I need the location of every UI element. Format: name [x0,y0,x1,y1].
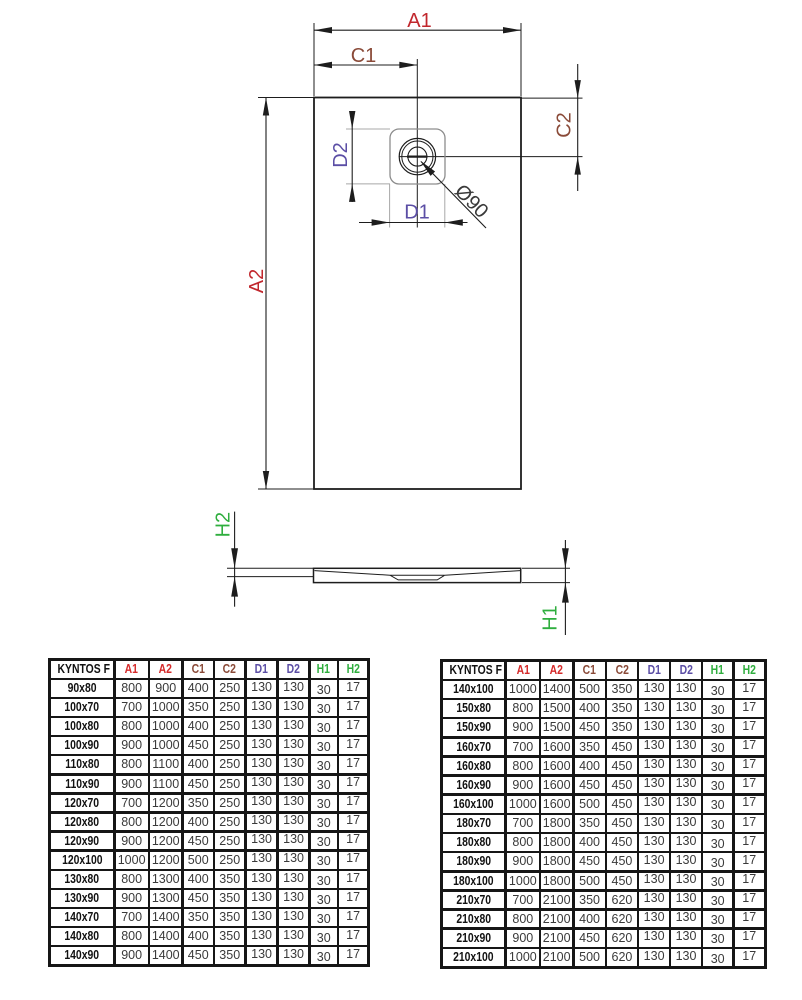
svg-text:C1: C1 [351,45,377,67]
svg-text:C2: C2 [554,112,576,138]
svg-text:D2: D2 [330,142,352,168]
svg-text:Ø90: Ø90 [450,180,492,222]
svg-text:H1: H1 [539,605,561,631]
svg-text:D1: D1 [404,202,430,224]
svg-text:A1: A1 [407,10,431,32]
svg-text:H2: H2 [212,512,234,538]
svg-text:A2: A2 [246,269,268,293]
